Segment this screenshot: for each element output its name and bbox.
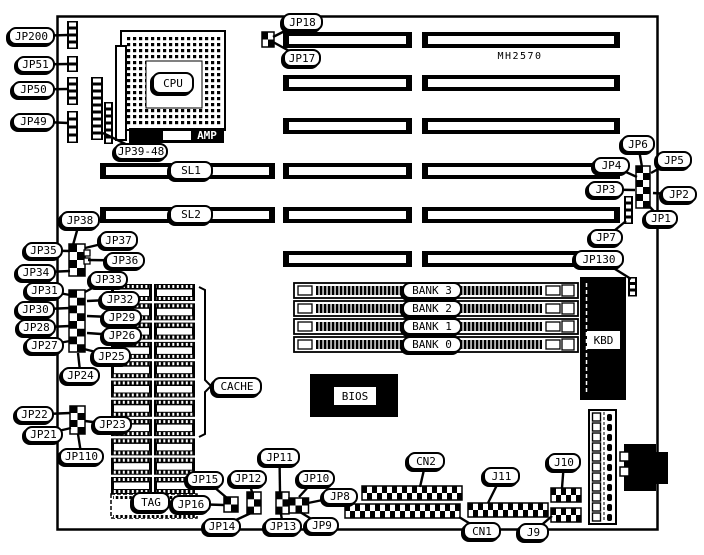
callout-jp25: JP25 (92, 347, 131, 365)
keyboard-din-connector (620, 444, 668, 491)
power-connector (589, 410, 616, 524)
callout-jp18: JP18 (282, 13, 323, 31)
callout-jp200: JP200 (8, 27, 55, 45)
callout-cpu: CPU (152, 72, 194, 94)
callout-cn1: CN1 (463, 522, 501, 540)
callout-jp12: JP12 (229, 470, 267, 487)
callout-sl1: SL1 (169, 161, 213, 180)
callout-jp16: JP16 (171, 495, 211, 513)
callout-jp4: JP4 (593, 157, 630, 174)
callout-jp130: JP130 (574, 250, 624, 268)
callout-jp50: JP50 (12, 81, 55, 98)
callout-jp39_48: JP39-48 (114, 143, 168, 160)
callout-jp24: JP24 (61, 367, 100, 384)
callout-jp1: JP1 (644, 210, 678, 227)
label-amp: AMP (191, 128, 223, 143)
callout-jp23: JP23 (93, 416, 132, 433)
callout-jp36: JP36 (105, 252, 145, 269)
callout-jp21: JP21 (24, 426, 63, 443)
label-bios: BIOS (334, 387, 376, 405)
callout-jp22: JP22 (15, 406, 54, 423)
callout-jp32: JP32 (100, 291, 140, 308)
callout-cn2: CN2 (407, 452, 445, 470)
motherboard-layout-diagram: JP200JP51JP50JP49JP39-48JP18JP17MH2570JP… (0, 0, 704, 555)
callout-jp49: JP49 (12, 113, 55, 130)
callout-jp3: JP3 (587, 181, 624, 198)
callout-jp6: JP6 (621, 135, 655, 153)
callout-jp5: JP5 (656, 151, 692, 169)
callout-jp27: JP27 (25, 337, 64, 354)
callout-jp38: JP38 (60, 211, 100, 229)
callout-jp33: JP33 (89, 271, 128, 288)
pin-headers (345, 486, 581, 522)
callout-sl2: SL2 (169, 205, 213, 224)
callout-jp30: JP30 (16, 301, 55, 318)
cache-bracket (199, 287, 211, 437)
callout-j10: J10 (547, 453, 581, 471)
callout-jp35: JP35 (24, 242, 63, 259)
callout-jp37: JP37 (99, 231, 138, 249)
callout-jp8: JP8 (322, 488, 358, 505)
callout-bank1: BANK 1 (402, 318, 462, 335)
callout-jp7: JP7 (589, 229, 623, 246)
callout-jp10: JP10 (297, 470, 335, 487)
callout-jp26: JP26 (102, 327, 142, 344)
callout-jp31: JP31 (25, 282, 64, 299)
callout-jp9: JP9 (305, 517, 339, 534)
callout-bank3: BANK 3 (402, 282, 462, 299)
callout-bank2: BANK 2 (402, 300, 462, 317)
callout-jp28: JP28 (17, 319, 56, 336)
callout-jp15: JP15 (186, 471, 224, 488)
callout-jp110: JP110 (59, 448, 104, 465)
callout-tag: TAG (132, 492, 170, 512)
callout-jp2: JP2 (661, 186, 697, 203)
callout-j11: J11 (483, 467, 520, 485)
callout-jp34: JP34 (16, 264, 56, 281)
callout-jp51: JP51 (16, 56, 55, 73)
callout-cache: CACHE (212, 377, 262, 396)
label-mh2570: MH2570 (488, 49, 552, 65)
callout-jp29: JP29 (102, 309, 142, 326)
callout-jp17: JP17 (283, 49, 321, 67)
label-kbd: KBD (587, 331, 620, 349)
callout-j9: J9 (518, 523, 549, 541)
callout-bank0: BANK 0 (402, 336, 462, 353)
callout-jp14: JP14 (203, 518, 241, 535)
callout-jp13: JP13 (264, 518, 302, 535)
callout-jp11: JP11 (259, 448, 300, 466)
